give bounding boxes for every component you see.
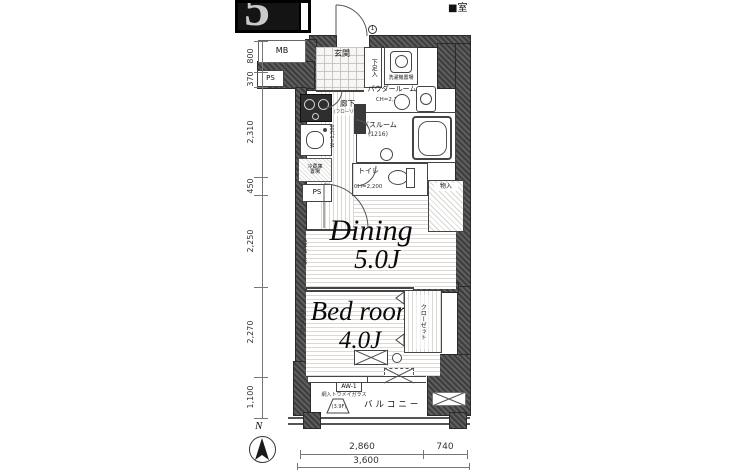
- folding-door-triangle-1: [396, 292, 404, 304]
- dim-tick: [254, 195, 268, 196]
- dim-tick: [297, 463, 298, 470]
- folding-door-triangle-2: [396, 334, 404, 346]
- dresser-x-mark: [354, 350, 388, 365]
- dim-left-370: 370: [245, 57, 255, 101]
- dim-left-2310: 2,310: [245, 110, 255, 154]
- ac-x-mark: [384, 368, 414, 383]
- closet-folding-door-marks: [396, 292, 404, 346]
- dim-tick: [254, 377, 268, 378]
- balcony-floor-trapezoid: [327, 399, 349, 413]
- dim-tick: [254, 418, 268, 419]
- dim-left-450: 450: [245, 164, 255, 208]
- dim-tick: [254, 87, 268, 88]
- dim-tick: [254, 177, 268, 178]
- door-swing-arcs: [324, 5, 376, 228]
- powder-door-arc: [324, 90, 342, 108]
- dim-left-line: [262, 41, 263, 418]
- north-label: N: [255, 420, 262, 432]
- dim-tick: [254, 41, 268, 42]
- dim-tick: [254, 72, 268, 73]
- dim-tick: [469, 463, 470, 470]
- dim-tick: [254, 287, 268, 288]
- dim-bottom-2860: 2,860: [332, 441, 392, 452]
- dim-bottom-740: 740: [423, 441, 467, 452]
- floorplan-canvas: 5 ■室 玄関 下足入 洗濯機置場 MB PS パウダールーム CH=2,200: [0, 0, 730, 470]
- dim-left-2250: 2,250: [245, 219, 255, 263]
- entrance-door-arc: [336, 5, 367, 36]
- dining-door-arc: [324, 184, 368, 228]
- balcony-box-x-mark: [432, 392, 466, 406]
- toilet-door-arc: [356, 166, 376, 186]
- dim-tick: [467, 450, 468, 459]
- plan-linework: [0, 0, 730, 470]
- dim-bottom-3600: 3,600: [336, 456, 396, 466]
- compass-circle: [249, 436, 276, 463]
- dim-bottom-line-1: [300, 454, 467, 455]
- dim-left-2270: 2,270: [245, 310, 255, 354]
- bath-door-arc: [356, 120, 370, 134]
- dim-left-1100: 1,100: [245, 375, 255, 419]
- cross-marks: [354, 350, 466, 406]
- dim-bottom-line-2: [297, 467, 470, 468]
- dim-tick: [300, 450, 301, 459]
